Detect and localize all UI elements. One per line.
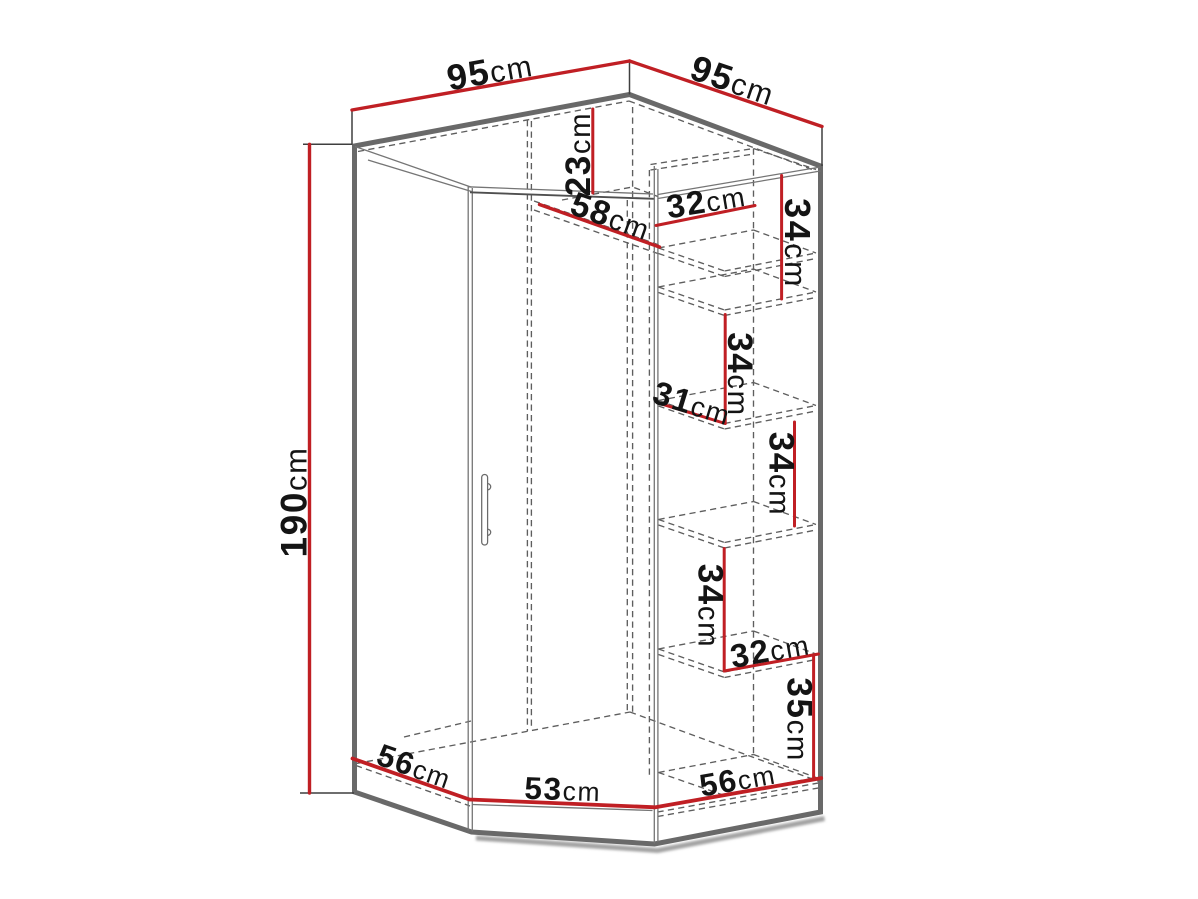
svg-text:35cm: 35cm bbox=[780, 677, 819, 762]
svg-text:34cm: 34cm bbox=[762, 432, 801, 517]
svg-text:190cm: 190cm bbox=[274, 446, 315, 557]
svg-text:34cm: 34cm bbox=[777, 198, 818, 289]
svg-text:34cm: 34cm bbox=[691, 564, 730, 649]
svg-text:23cm: 23cm bbox=[559, 112, 598, 197]
